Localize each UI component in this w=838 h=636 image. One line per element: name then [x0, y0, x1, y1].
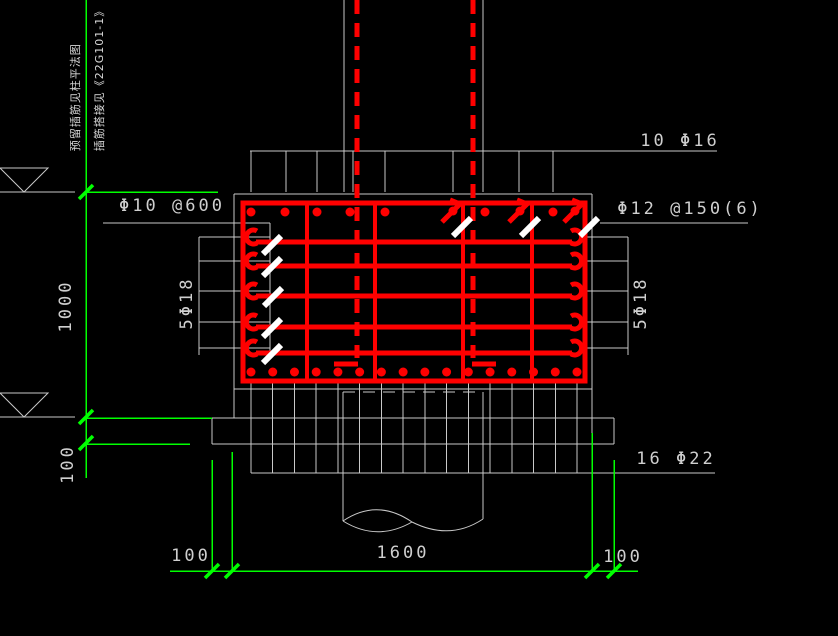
pile-break-arc	[343, 521, 412, 532]
bottom-bar-dot	[507, 368, 516, 377]
bottom-bar-dot	[247, 368, 256, 377]
side-bar-hook-right	[571, 254, 582, 268]
level-triangle-icon	[0, 393, 48, 417]
bottom-bar-dot	[529, 368, 538, 377]
pile-break-arc	[412, 519, 483, 531]
rebar-cage	[243, 0, 585, 381]
top-bar-dot	[346, 208, 355, 217]
bottom-bar-dot	[573, 368, 582, 377]
note-line-2: 插筋搭接见《22G101-1》	[88, 5, 112, 151]
side-bar-hook-right	[571, 341, 582, 355]
label-top-mesh-bars: 10 Φ16	[640, 131, 719, 151]
top-bar-dot	[281, 208, 290, 217]
label-side-bars-right: 5Φ18	[631, 277, 651, 330]
label-stirrups: Φ12 @150(6)	[617, 199, 763, 219]
bottom-bar-dot	[399, 368, 408, 377]
bottom-bar-dot	[268, 368, 277, 377]
note-vertical-text: 预留插筋见柱平法图 插筋搭接见《22G101-1》	[64, 5, 112, 151]
top-bar-dot	[313, 208, 322, 217]
cad-drawing-canvas: 预留插筋见柱平法图 插筋搭接见《22G101-1》 10 Φ16 Φ12 @15…	[0, 0, 838, 636]
dim-blinding-thickness: 100	[58, 444, 78, 484]
pile-break-arc	[343, 510, 412, 522]
bottom-bar-dot	[464, 368, 473, 377]
note-line-1: 预留插筋见柱平法图	[64, 5, 88, 151]
bottom-bar-dot	[420, 368, 429, 377]
dim-bottom-right: 100	[603, 547, 643, 567]
side-bar-hook-right	[571, 284, 582, 298]
label-bottom-bars: 16 Φ22	[636, 449, 715, 469]
bottom-bar-dot	[442, 368, 451, 377]
dim-bottom-left: 100	[171, 546, 211, 566]
level-triangle-icon	[0, 168, 48, 192]
bottom-bar-dot	[486, 368, 495, 377]
top-bar-dot	[381, 208, 390, 217]
label-side-bars-left: 5Φ18	[177, 277, 197, 330]
top-bar-dot	[549, 208, 558, 217]
pile-outline	[343, 392, 483, 532]
bottom-bar-dot	[333, 368, 342, 377]
bottom-bar-dot	[290, 368, 299, 377]
bottom-bar-dot	[312, 368, 321, 377]
bottom-bar-dot	[377, 368, 386, 377]
bottom-bar-dot	[551, 368, 560, 377]
lap-splice-mark	[263, 236, 281, 254]
top-bar-dot	[247, 208, 256, 217]
top-bar-dot	[481, 208, 490, 217]
dim-footing-height: 1000	[56, 280, 76, 333]
drawing-svg	[0, 0, 838, 636]
bottom-bar-dot	[355, 368, 364, 377]
side-bar-hook-right	[571, 315, 582, 329]
label-ladder-bars: Φ10 @600	[119, 196, 225, 216]
dim-footing-width: 1600	[377, 543, 430, 563]
